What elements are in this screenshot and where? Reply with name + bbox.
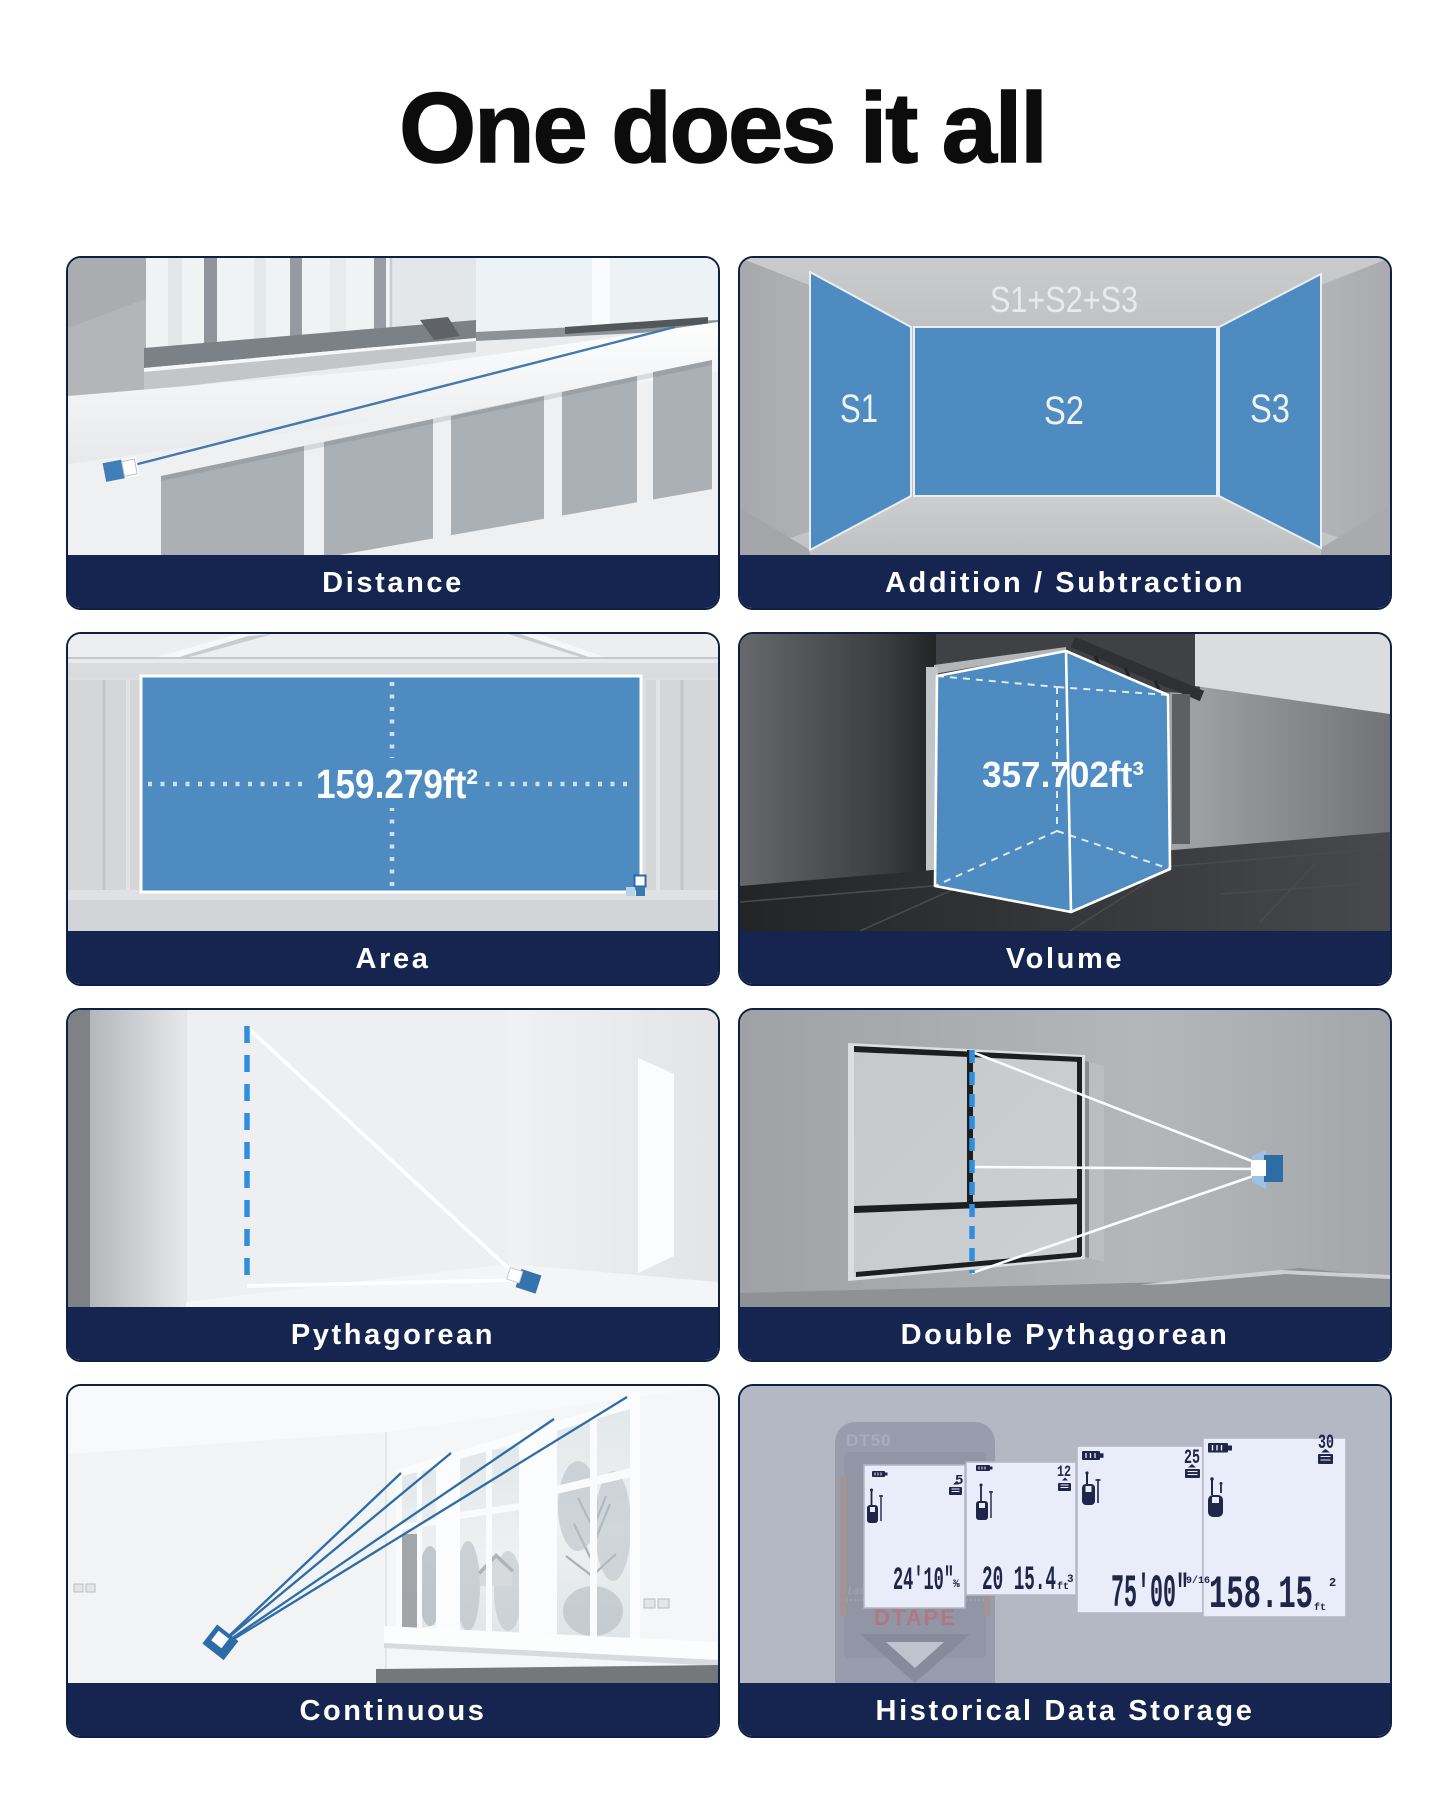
svg-text:12: 12 — [1057, 1463, 1071, 1481]
svg-text:⅜: ⅜ — [952, 1579, 960, 1591]
svg-text:357.702ft³: 357.702ft³ — [982, 754, 1144, 795]
svg-text:S1: S1 — [840, 387, 878, 431]
svg-text:5: 5 — [955, 1473, 963, 1489]
svg-text:24'10": 24'10" — [893, 1562, 954, 1599]
svg-text:S1+S2+S3: S1+S2+S3 — [990, 279, 1138, 320]
svg-text:DT50: DT50 — [846, 1431, 892, 1450]
svg-text:20 15.4: 20 15.4 — [982, 1562, 1056, 1600]
svg-text:ft: ft — [1314, 1602, 1326, 1614]
svg-text:159.279ft²: 159.279ft² — [316, 761, 478, 807]
svg-text:S2: S2 — [1044, 389, 1084, 433]
svg-text:3: 3 — [1067, 1574, 1074, 1586]
svg-text:75'00": 75'00" — [1111, 1568, 1189, 1620]
svg-text:9/16: 9/16 — [1186, 1575, 1210, 1587]
svg-text:S3: S3 — [1250, 387, 1290, 431]
svg-text:2: 2 — [1329, 1576, 1336, 1590]
svg-text:158.15: 158.15 — [1209, 1569, 1313, 1621]
